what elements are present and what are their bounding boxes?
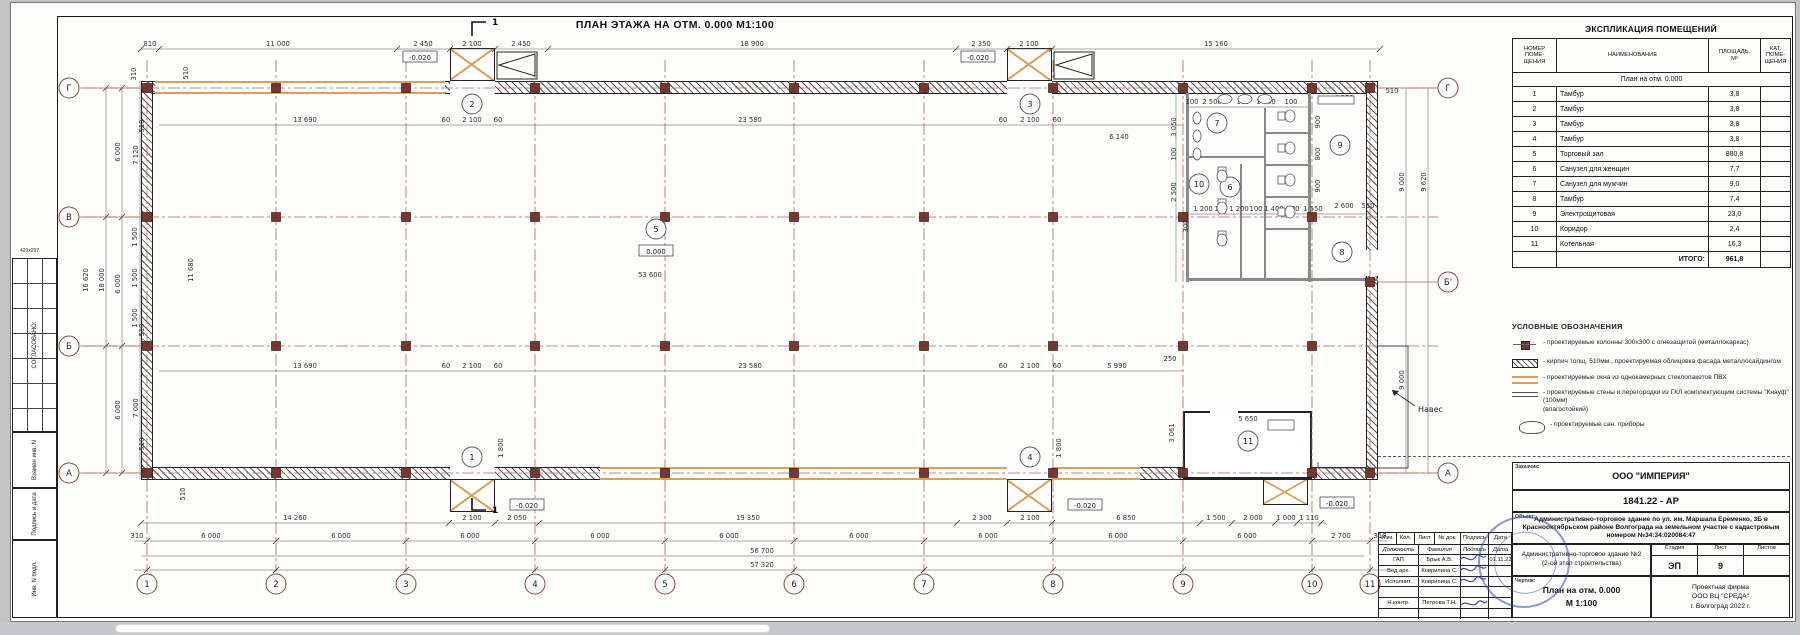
schedule-cell-cat [1761, 177, 1791, 192]
room-number: 3 [1027, 99, 1032, 109]
canopy-arrowhead [1392, 390, 1399, 396]
dimension-label: 2 100 [462, 40, 481, 48]
window-symbol-icon [1512, 376, 1538, 384]
dimension-label: 16 620 [82, 268, 90, 292]
toilet-tank [1278, 112, 1285, 120]
dimension-label: 250 [1164, 355, 1177, 363]
dimension-label: 6 850 [1116, 514, 1135, 522]
urinal-fixture [1193, 112, 1201, 124]
dimension-label: 6 000 [1108, 532, 1127, 540]
sink-fixture [1238, 95, 1252, 104]
titleblock-cell: Должность [1379, 545, 1419, 555]
schedule-row: 5Торговый зал880,8 [1513, 147, 1791, 162]
room-number: 11 [1243, 436, 1253, 446]
schedule-subheader: План на отм. 0.000 [1513, 73, 1791, 87]
legend-title: УСЛОВНЫЕ ОБОЗНАЧЕНИЯ [1512, 322, 1794, 331]
axis-bubble-label: 4 [532, 580, 537, 590]
dimension-label: 19 350 [736, 514, 760, 522]
room-number: 1 [469, 452, 474, 462]
schedule-total-spacer [1513, 252, 1557, 268]
column-300x300 [531, 213, 540, 222]
dimension-label: 2 100 [462, 362, 481, 370]
dimension-label: 900 [1314, 116, 1322, 129]
dimension-label: 6 000 [114, 142, 122, 161]
legend-item-text: - проектируемые сан. приборы [1550, 421, 1645, 429]
column-300x300 [1179, 84, 1188, 93]
schedule-cell-cat [1761, 162, 1791, 177]
level-value: -0.020 [409, 54, 431, 62]
titleblock-cell: № док. [1435, 533, 1461, 544]
schedule-cell-area: 9,0 [1709, 177, 1761, 192]
column-300x300 [1308, 213, 1317, 222]
titleblock-trim-line [1378, 456, 1790, 457]
room-number: 9 [1337, 140, 1342, 150]
sheet-number: 9 [1698, 556, 1744, 575]
axis-bubble-label: 3 [403, 580, 408, 590]
urinal-fixture [1193, 148, 1201, 160]
level-value: 0.000 [646, 248, 665, 256]
document-number: 1841.22 - АР [1623, 496, 1679, 507]
room-number: 10 [1194, 179, 1204, 189]
legend-item-text: - проектируемые окна из однокамерных сте… [1543, 374, 1727, 382]
column-300x300 [402, 84, 411, 93]
schedule-cell-num: 4 [1513, 132, 1557, 147]
dimension-label: 9 000 [1398, 370, 1406, 389]
schedule-cell-name: Санузел для женщин [1557, 162, 1709, 177]
column-300x300 [1308, 469, 1317, 478]
room-number: 2 [469, 99, 474, 109]
dimension-label: 9 620 [1420, 172, 1428, 191]
schedule-row: 9Электрощитовая23,0 [1513, 207, 1791, 222]
dimension-label: 5 990 [1107, 362, 1126, 370]
column-300x300 [1366, 469, 1375, 478]
axis-bubble-label: 1 [144, 580, 149, 590]
schedule-cell-name: Тамбур [1557, 87, 1709, 102]
dimension-label: 100 [1250, 205, 1263, 213]
legend-item: - проектируемые стены и перегородки из Г… [1512, 389, 1794, 414]
row-bubble-label: Б [66, 342, 72, 352]
axis-bubble-label: 9 [1180, 580, 1185, 590]
column-300x300 [1049, 342, 1058, 351]
sink-fixture [1258, 95, 1272, 104]
dimension-label: 300 [1182, 220, 1190, 233]
column-300x300 [402, 213, 411, 222]
titleblock-cell [1419, 609, 1461, 619]
dimension-label: 1 800 [497, 438, 505, 457]
schedule-row: 2Тамбур3,8 [1513, 102, 1791, 117]
dimension-label: 800 [1314, 148, 1322, 161]
dimension-label: 18 000 [98, 268, 106, 292]
schedule-cell-area: 7,7 [1709, 162, 1761, 177]
titleblock-cell: ГАП [1379, 555, 1419, 565]
schedule-col-area: ПЛОЩАДЬ, М² [1709, 39, 1761, 73]
dimension-label: 510 [138, 438, 146, 451]
column-300x300 [531, 469, 540, 478]
dimension-label: 11 680 [187, 258, 195, 282]
section-mark [472, 22, 486, 36]
schedule-cell-name: Коридор [1557, 222, 1709, 237]
schedule-row: 10Коридор2,4 [1513, 222, 1791, 237]
dimension-label: 53 600 [638, 271, 662, 279]
titleblock-cell [1379, 587, 1419, 597]
column-300x300 [272, 342, 281, 351]
column-300x300 [1308, 84, 1317, 93]
legend-item: - проектируемые колонны 300х300 с огнеза… [1512, 339, 1794, 351]
schedule-cell-cat [1761, 237, 1791, 252]
dimension-label: 6 000 [849, 532, 868, 540]
legend-item-text: - кирпич толщ. 510мм., проектируемая обл… [1543, 358, 1781, 366]
dimension-label: 60 [999, 116, 1008, 124]
stage-sheet-grid: Стадия Лист Листов ЭП 9 [1651, 544, 1790, 576]
schedule-col-name: НАИМЕНОВАНИЕ [1557, 39, 1709, 73]
schedule-cell-cat [1761, 147, 1791, 162]
level-value: -0.020 [967, 54, 989, 62]
schedule-row: 11Котельная16,3 [1513, 237, 1791, 252]
row-bubble-label: Г [66, 84, 71, 94]
room-schedule: ЭКСПЛИКАЦИЯ ПОМЕЩЕНИЙ НОМЕР ПОМЕ- ЩЕНИЯ … [1512, 24, 1790, 268]
column-300x300 [402, 342, 411, 351]
column-300x300 [1049, 469, 1058, 478]
titleblock-cell: Вед.арх. [1379, 566, 1419, 576]
schedule-cell-num: 3 [1513, 117, 1557, 132]
dimension-label: 510 [179, 488, 187, 501]
column-300x300 [790, 469, 799, 478]
column-300x300 [272, 469, 281, 478]
dimension-label: 510 [1362, 202, 1375, 210]
dimension-label: 6 000 [201, 532, 220, 540]
axis-bubble-label: 11 [1365, 580, 1376, 590]
customer-label: Заказчик: [1515, 464, 1540, 470]
sheet-label: Лист [1698, 545, 1744, 555]
toilet-fixture [1285, 174, 1295, 186]
signature-row [1379, 608, 1511, 619]
schedule-cell-name: Санузел для мужчин [1557, 177, 1709, 192]
level-value: -0.020 [1326, 500, 1348, 508]
toilet-fixture [1285, 110, 1295, 122]
legend-item: - проектируемые сан. приборы [1512, 421, 1794, 434]
column-300x300 [661, 84, 670, 93]
cad-viewer-screen: 420х297 СОГЛАСОВАНО: Взамен инв. N Подпи… [0, 0, 1800, 635]
schedule-cell-num: 6 [1513, 162, 1557, 177]
section-mark [472, 498, 486, 510]
column-300x300 [920, 342, 929, 351]
schedule-total-label: ИТОГО: [1557, 252, 1709, 268]
row-bubble-label: А [1445, 469, 1451, 479]
dimension-label: 6 000 [590, 532, 609, 540]
dimension-label: 14 260 [283, 514, 307, 522]
schedule-table: НОМЕР ПОМЕ- ЩЕНИЯ НАИМЕНОВАНИЕ ПЛОЩАДЬ, … [1512, 38, 1791, 268]
legend-item-text: - проектируемые стены и перегородки из Г… [1543, 389, 1794, 414]
titleblock-cell [1489, 609, 1511, 619]
schedule-cell-cat [1761, 102, 1791, 117]
level-value: -0.020 [516, 502, 538, 510]
row-bubble-label: Б' [1444, 278, 1452, 288]
dimension-label: 7 000 [132, 398, 140, 417]
dimension-label: 13 690 [293, 116, 317, 124]
dimension-label: 2 100 [462, 116, 481, 124]
schedule-total-value: 961,8 [1709, 252, 1761, 268]
column-300x300 [790, 213, 799, 222]
firm-line3: г. Волгоград 2022 г. [1690, 602, 1750, 611]
dimension-label: 2 500 [1170, 182, 1178, 201]
schedule-cell-area: 7,4 [1709, 192, 1761, 207]
toilet-fixture [1217, 234, 1227, 246]
dimension-label: 11 000 [266, 40, 290, 48]
column-300x300 [1049, 84, 1058, 93]
dimension-label: 60 [1053, 116, 1062, 124]
axis-bubble-label: 8 [1050, 580, 1055, 590]
dimension-label: 1 200 [1229, 205, 1248, 213]
schedule-cell-area: 3,8 [1709, 132, 1761, 147]
column-300x300 [790, 342, 799, 351]
dimension-label: 23 580 [738, 116, 762, 124]
row-bubble-label: А [66, 469, 72, 479]
titleblock-cell: Лист [1415, 533, 1435, 544]
ramp-symbol [499, 54, 535, 76]
schedule-cell-name: Котельная [1557, 237, 1709, 252]
dimension-label: 23 580 [738, 362, 762, 370]
column-symbol-icon [1512, 339, 1538, 351]
dimension-label: 6 000 [114, 274, 122, 293]
firm-line2: ООО ВЦ "СРЕДА" [1692, 592, 1749, 601]
titleblock-cell [1379, 609, 1419, 619]
schedule-col-number: НОМЕР ПОМЕ- ЩЕНИЯ [1513, 39, 1557, 73]
dimension-label: 510 [138, 324, 146, 337]
gkl-wall-symbol-icon [1512, 392, 1538, 397]
column-300x300 [143, 469, 152, 478]
dimension-label: 2 050 [507, 514, 526, 522]
dimension-label: 510 [1386, 87, 1399, 95]
section-mark-label: 1 [492, 18, 498, 28]
scrollbar-thumb[interactable] [115, 624, 770, 633]
schedule-cell-name: Тамбур [1557, 192, 1709, 207]
dimension-label: 15 160 [1204, 40, 1228, 48]
column-300x300 [1366, 84, 1375, 93]
axis-bubble-label: 7 [921, 580, 926, 590]
row-bubble-label: Г [1445, 84, 1450, 94]
dimension-label: 2 350 [971, 40, 990, 48]
titleblock-cell: Н.контр. [1379, 598, 1419, 608]
scrollbar-track[interactable] [0, 622, 1800, 635]
schedule-cell-area: 880,8 [1709, 147, 1761, 162]
schedule-cell-cat [1761, 132, 1791, 147]
schedule-cell-num: 10 [1513, 222, 1557, 237]
column-300x300 [143, 84, 152, 93]
dimension-label: 2 100 [1019, 40, 1038, 48]
schedule-row: 6Санузел для женщин7,7 [1513, 162, 1791, 177]
schedule-cell-cat [1761, 192, 1791, 207]
schedule-cell-num: 5 [1513, 147, 1557, 162]
schedule-row: 8Тамбур7,4 [1513, 192, 1791, 207]
row-bubble-label: В [66, 213, 72, 223]
dimension-label: 100 [1186, 98, 1199, 106]
room-number: 4 [1027, 452, 1032, 462]
dimension-label: 60 [442, 116, 451, 124]
schedule-row: 3Тамбур3,8 [1513, 117, 1791, 132]
schedule-cell-num: 1 [1513, 87, 1557, 102]
titleblock-cell: Изм. [1379, 533, 1397, 544]
drawing-scale: М 1:100 [1566, 597, 1597, 610]
dimension-label: 60 [494, 116, 503, 124]
dimension-label: 2 450 [413, 40, 432, 48]
dimension-label: 900 [1314, 180, 1322, 193]
schedule-cell-area: 2,4 [1709, 222, 1761, 237]
dimension-label: 5 650 [1238, 415, 1257, 423]
axis-bubble-label: 10 [1307, 580, 1318, 590]
dimension-label: 1 110 [1299, 514, 1318, 522]
dimension-label: 510 [182, 67, 190, 80]
schedule-cell-num: 8 [1513, 192, 1557, 207]
customer-name: ООО "ИМПЕРИЯ" [1612, 471, 1689, 481]
dimension-label: 1 550 [1303, 205, 1322, 213]
dimension-label: 57 320 [750, 561, 774, 569]
dimension-label: 6 000 [1237, 532, 1256, 540]
titleblock-cell: Коврипина С. [1419, 577, 1461, 587]
dimension-label: 2 700 [1331, 532, 1350, 540]
dimension-label: 2 000 [1243, 514, 1262, 522]
column-300x300 [272, 213, 281, 222]
firm-line1: Проектная фирма [1692, 583, 1749, 592]
column-300x300 [920, 213, 929, 222]
column-300x300 [143, 213, 152, 222]
column-300x300 [1049, 213, 1058, 222]
toilet-fixture [1217, 202, 1227, 214]
dimension-label: 6 000 [978, 532, 997, 540]
dimension-label: 810 [144, 40, 157, 48]
titleblock-cell: Фамилия [1419, 545, 1461, 555]
column-300x300 [1308, 342, 1317, 351]
dimension-label: 3 050 [1170, 117, 1178, 136]
dimension-label: 2 100 [1020, 362, 1039, 370]
legend-item: - кирпич толщ. 510мм., проектируемая обл… [1512, 358, 1794, 367]
schedule-cell-name: Электрощитовая [1557, 207, 1709, 222]
schedule-cell-num: 11 [1513, 237, 1557, 252]
boiler-equipment [1268, 420, 1294, 430]
column-300x300 [402, 469, 411, 478]
stage-label: Стадия [1652, 545, 1698, 555]
titleblock-cell: Брык А.В. [1419, 555, 1461, 565]
schedule-cell-name: Тамбур [1557, 102, 1709, 117]
dimension-label: 60 [1053, 362, 1062, 370]
schedule-cell-area: 3,8 [1709, 117, 1761, 132]
column-300x300 [790, 84, 799, 93]
electrical-cabinet [1318, 96, 1354, 104]
schedule-cell-num: 9 [1513, 207, 1557, 222]
dimension-label: 6 000 [331, 532, 350, 540]
dimension-label: 1 000 [1276, 514, 1295, 522]
schedule-cell-name: Тамбур [1557, 132, 1709, 147]
room-number: 7 [1214, 118, 1219, 128]
column-300x300 [143, 342, 152, 351]
dimension-label: 13 690 [293, 362, 317, 370]
schedule-cell-cat [1761, 222, 1791, 237]
toilet-tank [1278, 208, 1285, 216]
toilet-tank [1278, 176, 1285, 184]
schedule-cell-cat [1761, 87, 1791, 102]
dimension-label: 2 100 [462, 514, 481, 522]
dimension-label: 18 900 [740, 40, 764, 48]
dimension-label: 100 [1285, 98, 1298, 106]
column-300x300 [531, 84, 540, 93]
dimension-label: 2 100 [1020, 514, 1039, 522]
room-number: 6 [1227, 182, 1232, 192]
dimension-label: 1 500 [1206, 514, 1225, 522]
schedule-cell-cat [1761, 207, 1791, 222]
dimension-label: 2 600 [1334, 202, 1353, 210]
dimension-label: 310 [131, 532, 144, 540]
dimension-label: 60 [999, 362, 1008, 370]
schedule-cell-name: Торговый зал [1557, 147, 1709, 162]
canopy-outline [1318, 346, 1408, 468]
room-number: 5 [653, 224, 658, 234]
schedule-cell-num: 2 [1513, 102, 1557, 117]
schedule-row: 1Тамбур3,8 [1513, 87, 1791, 102]
axis-bubble-label: 2 [273, 580, 278, 590]
legend-item-text: - проектируемые колонны 300х300 с огнеза… [1543, 339, 1749, 347]
canopy-label: Навес [1418, 405, 1443, 414]
column-300x300 [1366, 278, 1375, 287]
schedule-cell-num: 7 [1513, 177, 1557, 192]
dimension-label: 6 000 [114, 400, 122, 419]
dimension-label: 2 300 [972, 514, 991, 522]
dimension-label: 1 500 [131, 268, 139, 287]
brick-wall-symbol-icon [1512, 359, 1538, 368]
titleblock-cell: Петрова Т.Н. [1419, 598, 1461, 608]
titleblock-cell: Коврипина С. [1419, 566, 1461, 576]
dimension-label: 1 200 [1193, 205, 1212, 213]
schedule-cell-area: 3,8 [1709, 87, 1761, 102]
column-300x300 [920, 84, 929, 93]
ramp-symbol [1056, 54, 1092, 76]
toilet-fixture [1285, 206, 1295, 218]
dimension-label: 3 061 [1168, 423, 1176, 442]
schedule-col-category: КАТ. ПОМЕ- ЩЕНИЯ [1761, 39, 1791, 73]
dimension-label: 6 140 [1109, 133, 1128, 141]
schedule-cell-area: 16,3 [1709, 237, 1761, 252]
toilet-fixture [1285, 142, 1295, 154]
axis-bubble-label: 5 [662, 580, 667, 590]
dimension-label: 310 [130, 68, 138, 81]
legend-item: - проектируемые окна из однокамерных сте… [1512, 374, 1794, 382]
dimension-label: 2 450 [511, 40, 530, 48]
dimension-label: 60 [494, 362, 503, 370]
schedule-cell-area: 3,8 [1709, 102, 1761, 117]
section-mark-label: 1 [492, 506, 498, 516]
schedule-title: ЭКСПЛИКАЦИЯ ПОМЕЩЕНИЙ [1512, 24, 1790, 34]
column-300x300 [531, 342, 540, 351]
schedule-cell-name: Тамбур [1557, 117, 1709, 132]
schedule-row: 7Санузел для мужчин9,0 [1513, 177, 1791, 192]
dimension-label: 100 [1170, 148, 1178, 161]
dimension-label: 9 000 [1398, 172, 1406, 191]
schedule-cell-cat [1761, 117, 1791, 132]
sink-fixture [1218, 95, 1232, 104]
dimension-label: 56 700 [750, 547, 774, 555]
dimension-label: 510 [138, 120, 146, 133]
column-300x300 [272, 84, 281, 93]
titleblock-cell: Исполнит. [1379, 577, 1419, 587]
level-value: -0.020 [1074, 502, 1096, 510]
axis-bubble-label: 6 [791, 580, 796, 590]
titleblock-cell [1419, 587, 1461, 597]
column-300x300 [1179, 342, 1188, 351]
column-300x300 [661, 342, 670, 351]
urinal-fixture [1193, 130, 1201, 142]
schedule-cell-area: 23,0 [1709, 207, 1761, 222]
column-300x300 [920, 469, 929, 478]
column-300x300 [1179, 469, 1188, 478]
dimension-label: 1 800 [1055, 438, 1063, 457]
